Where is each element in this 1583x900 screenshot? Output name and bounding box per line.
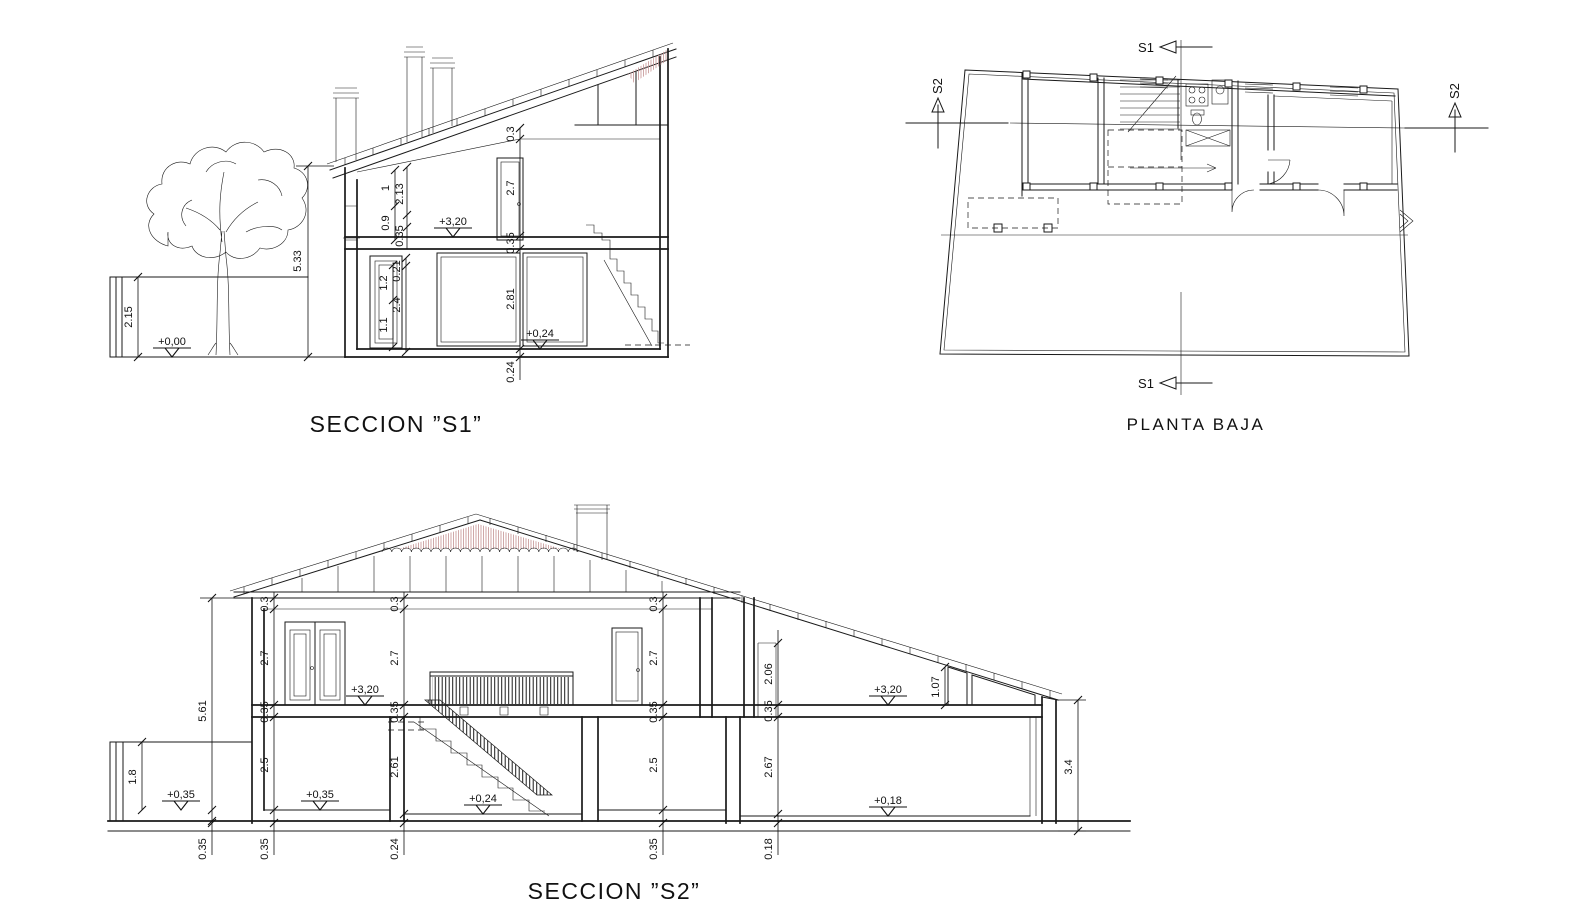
level-label: +0,35	[167, 789, 195, 801]
columns	[994, 71, 1367, 232]
dim-label: 1	[380, 185, 392, 191]
level-label: +3,20	[874, 684, 902, 696]
level-label: +0,24	[469, 793, 497, 805]
section-s1-drawing: 2.15 5.33 1 0.9 2.13 0.35 0.3 2.7 0.35 2…	[110, 43, 690, 437]
dim-label: 1.07	[930, 676, 942, 697]
dim-label: 2.7	[259, 650, 271, 665]
dim-label: 0.35	[389, 701, 401, 722]
floor-plan-drawing: S1 S1 S2 S2 PLANTA BAJA	[906, 40, 1488, 434]
window-hatches	[1140, 79, 1358, 96]
ceiling-line	[357, 139, 660, 172]
level-marker: +0,35	[162, 789, 200, 810]
roof-slope	[330, 49, 676, 178]
marker-label: S2	[1447, 83, 1462, 99]
s2-dimensions: 1.8 5.61 0.35 0.3 2.7 0.35 2.5 0.35 0.3 …	[127, 592, 1086, 860]
dim-label: 2.61	[389, 756, 401, 777]
marker-label: S2	[930, 78, 945, 94]
tree	[147, 142, 308, 355]
level-label: +0,24	[526, 328, 554, 340]
dim-label: 0.35	[505, 232, 517, 253]
dim-label: 2.67	[763, 756, 775, 777]
level-marker: +0,24	[464, 793, 502, 814]
section-cut-lines	[1010, 40, 1405, 395]
kitchen-fixtures	[1186, 80, 1230, 146]
level-label: +0,00	[158, 336, 186, 348]
s2-floor-slab	[252, 705, 1042, 717]
dim-label: 0.35	[394, 225, 406, 246]
dim-label: 0.35	[648, 701, 660, 722]
dim-label: 5.61	[197, 700, 209, 721]
stairs	[586, 225, 664, 346]
dim-label: 0.9	[380, 215, 392, 230]
door-swings	[1232, 160, 1344, 216]
level-marker: +0,35	[301, 789, 339, 810]
dim-label: 0.35	[763, 700, 775, 721]
level-marker: +3,20	[869, 684, 907, 705]
s1-title: SECCION ”S1”	[310, 411, 483, 437]
plot-boundary-inner	[944, 74, 1405, 352]
architectural-drawing-sheet: 2.15 5.33 1 0.9 2.13 0.35 0.3 2.7 0.35 2…	[0, 0, 1583, 900]
s2-title: SECCION ”S2”	[528, 878, 701, 900]
level-label: +0,35	[306, 789, 334, 801]
roof-tiles-left	[230, 514, 476, 594]
level-marker: +0,00	[153, 336, 191, 357]
french-door	[285, 622, 345, 705]
dim-label: 0.3	[505, 126, 517, 141]
level-marker: +0,18	[869, 795, 907, 816]
dim-label: 2.7	[648, 650, 660, 665]
dim-label: 0.24	[389, 838, 401, 859]
eave-posts	[302, 556, 662, 592]
section-marker-s2-right: S2	[1405, 83, 1488, 152]
level-label: +3,20	[351, 684, 379, 696]
roof-tiles	[327, 43, 673, 165]
dim-label: 2.4	[391, 297, 403, 312]
corridor-arrow	[1130, 164, 1216, 172]
roof-slopes	[234, 520, 1058, 700]
plan-title: PLANTA BAJA	[1127, 415, 1266, 434]
dim-label: 0.3	[259, 596, 271, 611]
dim-label: 0.3	[648, 596, 660, 611]
dim-label: 0.24	[505, 361, 517, 382]
dim-label: 1.1	[378, 317, 390, 332]
dim-label: 2.06	[763, 663, 775, 684]
stair-railing	[425, 700, 552, 795]
dim-label: 0.18	[763, 838, 775, 859]
s2-chimney	[574, 505, 610, 560]
dim-label: 0.21	[391, 260, 403, 281]
slab-posts	[460, 707, 548, 715]
section-marker-s2-left: S2	[906, 78, 1008, 148]
dim-label: 3.4	[1063, 759, 1075, 774]
dim-label: 2.7	[389, 650, 401, 665]
dim-label: 5.33	[292, 250, 304, 271]
upper-door	[497, 158, 523, 240]
chimneys	[333, 47, 455, 162]
dim-label: 2.5	[259, 757, 271, 772]
dim-label: 2.15	[123, 306, 135, 327]
marker-label: S1	[1138, 376, 1154, 391]
room-inner-line	[1274, 96, 1392, 184]
dim-label: 1.2	[378, 275, 390, 290]
roof-pier	[948, 667, 967, 705]
gable-hatch	[398, 524, 562, 549]
plot-boundary	[940, 70, 1409, 356]
section-s2-drawing: 1.8 5.61 0.35 0.3 2.7 0.35 2.5 0.35 0.3 …	[108, 505, 1130, 900]
s2-floor-lines	[264, 810, 1030, 816]
section-marker-s1-top: S1	[1138, 40, 1212, 55]
level-marker: +3,20	[346, 684, 384, 705]
section-marker-s1-bottom: S1	[1138, 376, 1212, 391]
level-marker: +3,20	[434, 216, 472, 237]
terrain-lines	[110, 277, 345, 357]
s2-upper-door	[612, 628, 642, 705]
dim-label: 2.13	[394, 183, 406, 204]
roof-tile-hatch	[628, 49, 668, 83]
dim-label: 1.8	[127, 769, 139, 784]
gate-symbol	[1400, 210, 1413, 232]
dim-label: 0.35	[648, 838, 660, 859]
level-label: +3,20	[439, 216, 467, 228]
marker-label: S1	[1138, 40, 1154, 55]
wing-window	[1030, 717, 1036, 816]
dim-label: 2.5	[648, 757, 660, 772]
dim-label: 0.3	[389, 596, 401, 611]
dim-label: 0.35	[259, 838, 271, 859]
dim-label: 2.81	[505, 288, 517, 309]
dim-label: 0.35	[197, 838, 209, 859]
level-label: +0,18	[874, 795, 902, 807]
dim-label: 2.7	[505, 180, 517, 195]
dim-label: 0.35	[259, 701, 271, 722]
balustrade-hatch	[432, 677, 571, 704]
